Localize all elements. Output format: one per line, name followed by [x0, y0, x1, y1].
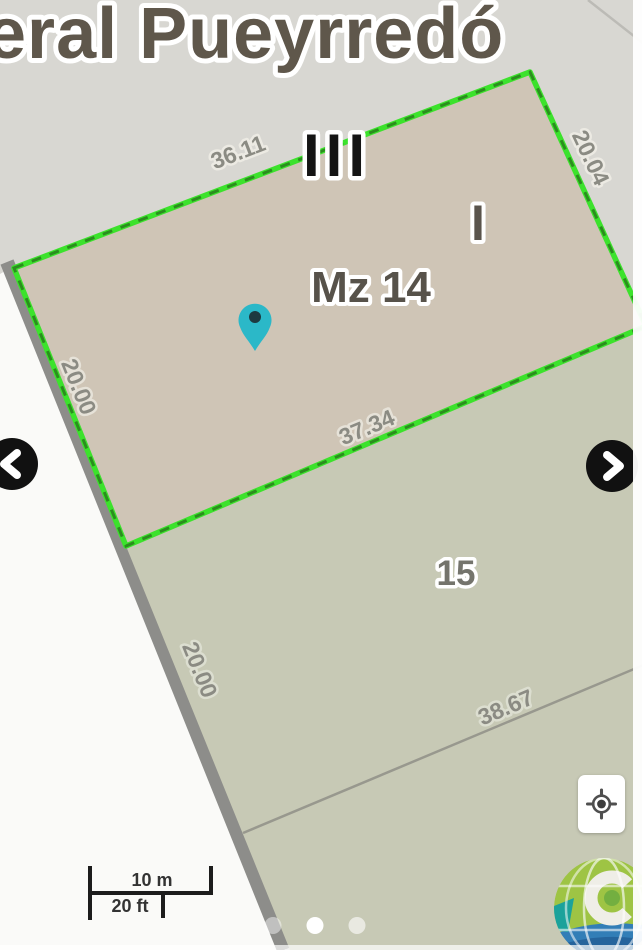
chevron-right-icon: [586, 440, 638, 492]
chevron-left-icon: [0, 438, 38, 490]
scale-metric-label: 10 m: [131, 870, 172, 890]
carousel-dot[interactable]: [349, 917, 366, 934]
parcel-number-15: 15: [437, 554, 476, 593]
street-name-label: eral Pueyrredó: [0, 0, 504, 74]
zone-label-iii: III: [303, 122, 371, 189]
my-location-button[interactable]: [578, 775, 625, 833]
bottom-edge-strip: [0, 945, 642, 950]
zone-label-i: I: [471, 195, 485, 251]
carousel-dots: [265, 917, 366, 934]
map-canvas[interactable]: eral Pueyrredó 36.11 20.04 20.00 37.34 2…: [0, 0, 642, 950]
carousel-next-button[interactable]: [586, 440, 638, 492]
my-location-icon: [584, 784, 619, 824]
scale-imperial-label: 20 ft: [111, 896, 148, 916]
carousel-prev-button[interactable]: [0, 438, 38, 490]
carousel-dot[interactable]: [265, 917, 282, 934]
pin-center-dot: [249, 311, 261, 323]
block-label: Mz 14: [311, 263, 431, 312]
right-edge-strip: [633, 0, 642, 950]
carousel-dot-active[interactable]: [307, 917, 324, 934]
